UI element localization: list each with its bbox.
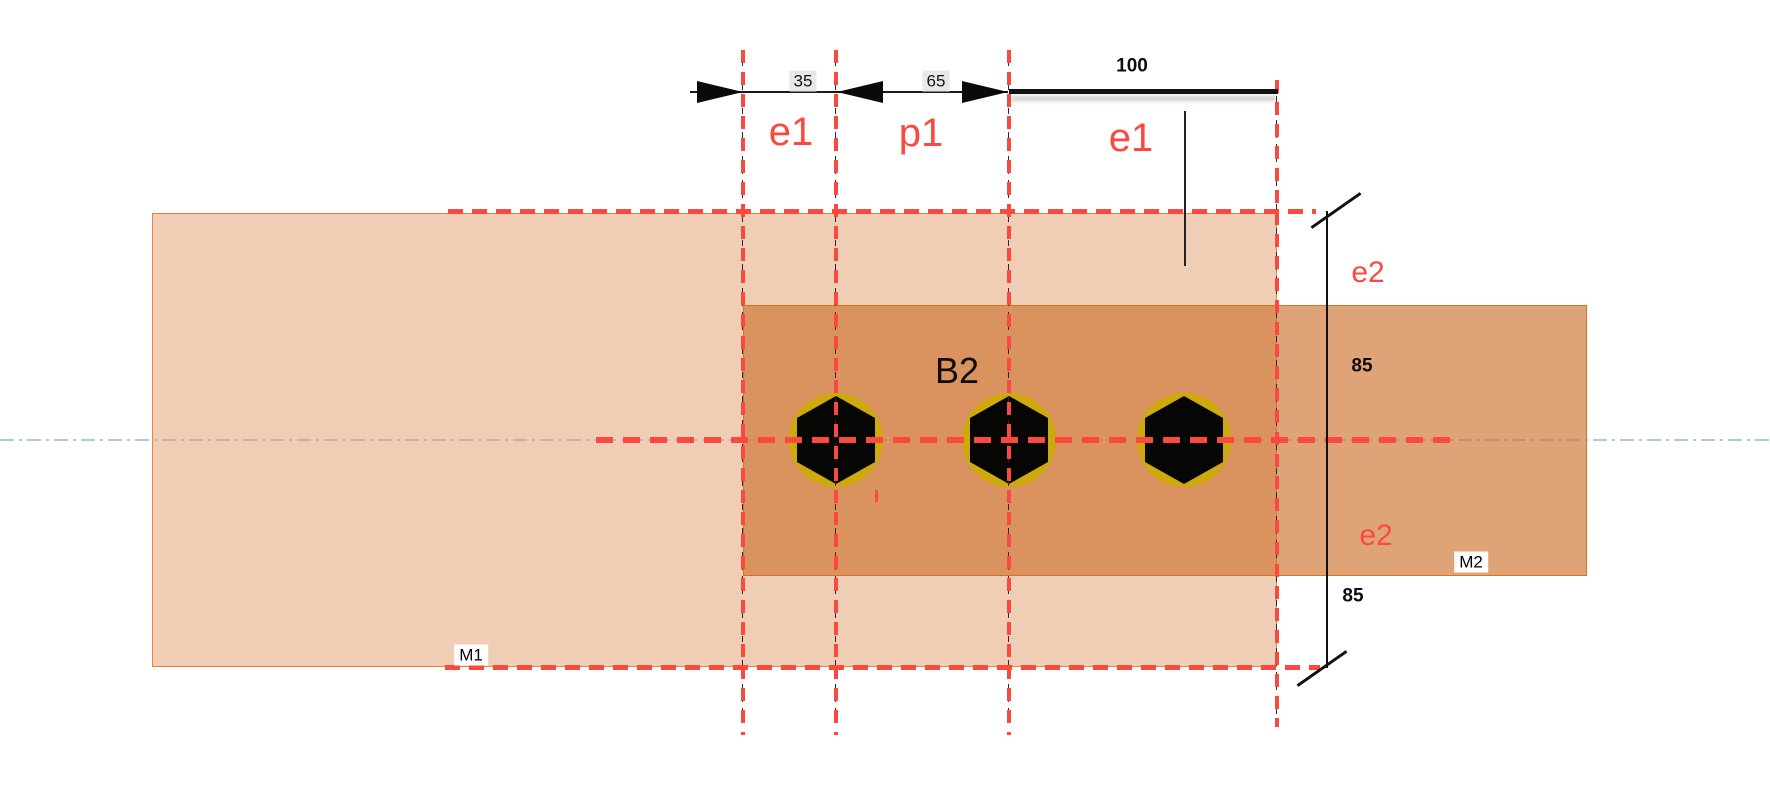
label-plate-m2: M2 (1454, 552, 1488, 573)
drawing-canvas: 35 65 100 e1 p1 e1 85 85 e2 e2 B2 M1 M2 (0, 0, 1770, 809)
label-bolt-group-b2: B2 (935, 353, 979, 389)
red-dashed-line-m1-edge (1275, 80, 1279, 727)
red-tick-mark (875, 490, 878, 502)
label-p1: p1 (899, 113, 944, 153)
dimension-line-100 (1009, 89, 1278, 94)
label-e2-lower: e2 (1359, 521, 1392, 551)
dimension-value-35: 35 (790, 71, 817, 92)
red-dashed-line-bottom-edge (445, 665, 1320, 670)
dimension-value-100: 100 (1116, 57, 1148, 76)
dimension-value-85-upper: 85 (1351, 357, 1372, 376)
red-dashed-line-bolt2 (1007, 50, 1011, 735)
dimension-line-right (1326, 211, 1328, 668)
label-e2-upper: e2 (1351, 258, 1384, 288)
label-e1-right: e1 (1109, 118, 1154, 158)
dimension-arrow-icon (962, 81, 1008, 103)
red-dashed-line-m2-edge (741, 50, 745, 735)
label-plate-m1: M1 (454, 645, 488, 666)
dimension-arrow-icon (837, 81, 883, 103)
red-dashed-line-bolt1 (834, 50, 838, 735)
leader-line-bolt3 (1184, 111, 1186, 266)
dimension-value-65: 65 (923, 71, 950, 92)
label-e1-left: e1 (769, 112, 814, 152)
dimension-tick-icon (1311, 192, 1362, 229)
dimension-arrow-icon (697, 81, 743, 103)
red-dashed-centerline (596, 437, 1450, 443)
dimension-value-85-lower: 85 (1342, 587, 1363, 606)
